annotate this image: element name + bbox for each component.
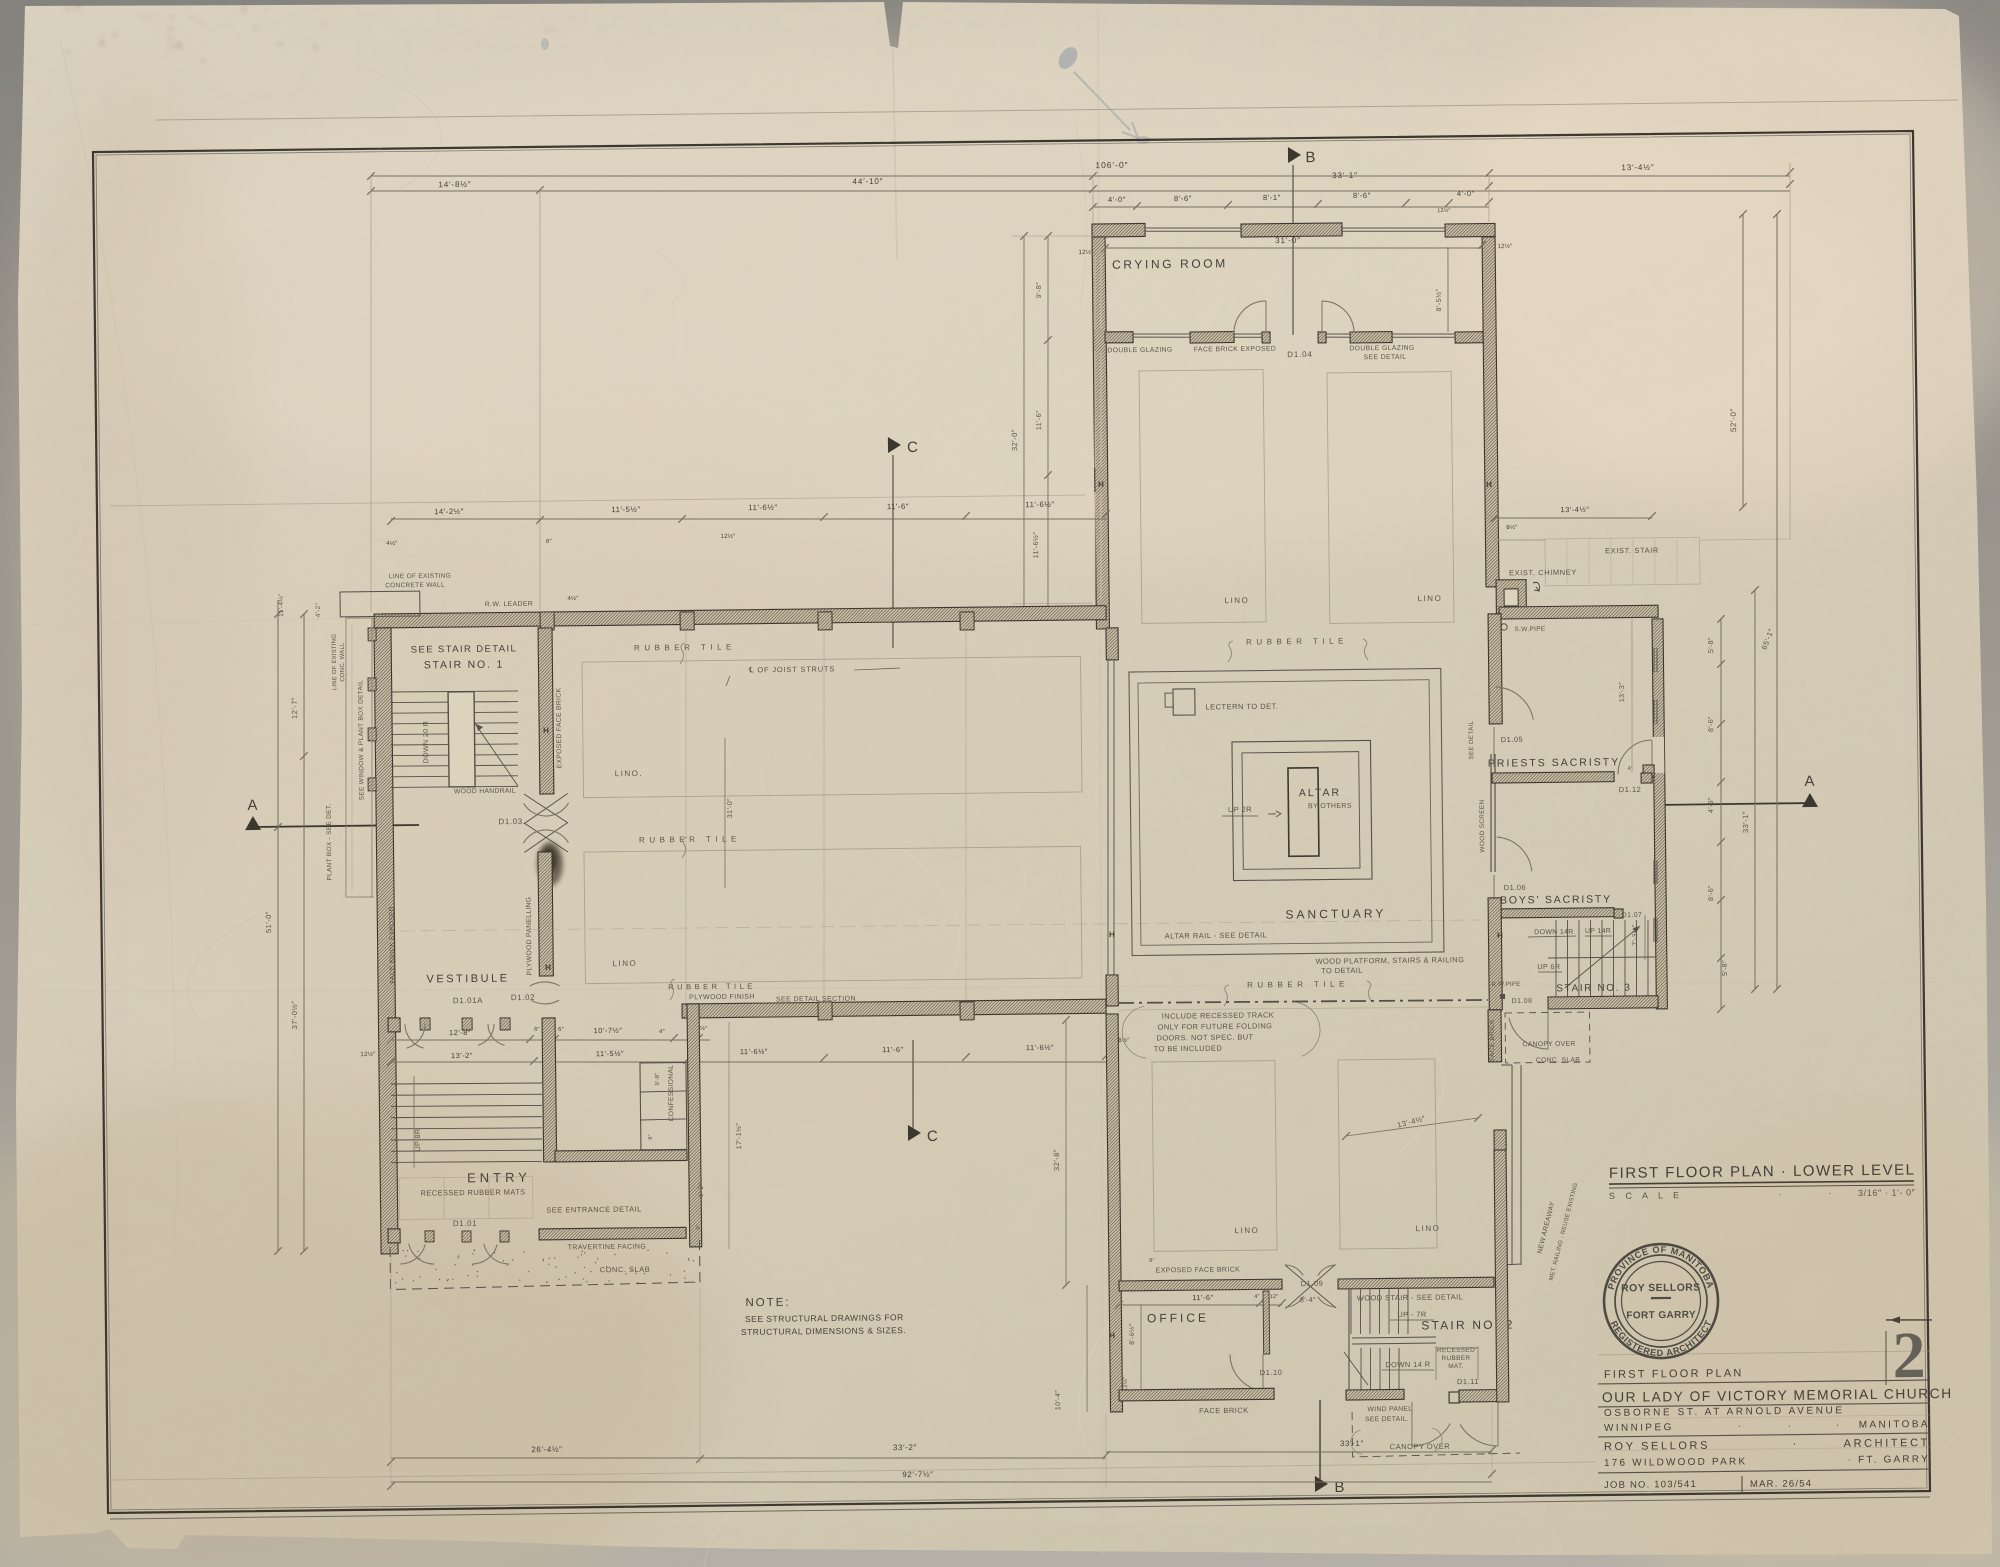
svg-text:UP 6R: UP 6R [1537, 962, 1560, 971]
svg-text:SEE DETAIL: SEE DETAIL [1468, 720, 1475, 759]
svg-text:CANOPY OVER: CANOPY OVER [1390, 1442, 1451, 1452]
svg-text:33′-1″: 33′-1″ [1741, 811, 1750, 833]
svg-text:8″: 8″ [648, 1134, 654, 1139]
svg-text:EXPOSED FACE BRICK: EXPOSED FACE BRICK [1156, 1267, 1241, 1275]
svg-text:STRUCTURAL DIMENSIONS & SIZES.: STRUCTURAL DIMENSIONS & SIZES. [741, 1325, 906, 1337]
svg-text:8″: 8″ [696, 1224, 702, 1229]
svg-text:7′-3½″: 7′-3½″ [1631, 924, 1639, 946]
svg-text:LINO.: LINO. [615, 769, 644, 778]
svg-text:11′-6½″: 11′-6½″ [1025, 500, 1054, 509]
svg-text:FACE BRICK: FACE BRICK [1489, 1019, 1496, 1061]
svg-text:D1.01: D1.01 [453, 1219, 477, 1228]
svg-text:4½″: 4½″ [386, 540, 398, 547]
svg-text:12″: 12″ [1270, 1294, 1279, 1300]
svg-text:H: H [1486, 480, 1492, 489]
svg-text:WINNIPEG: WINNIPEG [1604, 1422, 1674, 1434]
svg-text:12½″: 12½″ [1078, 249, 1094, 256]
svg-text:CONFESSIONAL: CONFESSIONAL [668, 1065, 676, 1122]
svg-text:D1.05: D1.05 [1501, 735, 1524, 744]
svg-text:14′-2½″: 14′-2½″ [434, 507, 464, 516]
svg-text:D1.07: D1.07 [1622, 912, 1643, 919]
svg-text:JOB NO. 103/541: JOB NO. 103/541 [1604, 1479, 1697, 1491]
svg-text:DOWN 14 R: DOWN 14 R [1385, 1360, 1431, 1370]
svg-text:4″: 4″ [1254, 1294, 1259, 1300]
svg-text:·: · [1738, 1421, 1742, 1432]
svg-text:SEE WINDOW & PLANT BOX DETAIL: SEE WINDOW & PLANT BOX DETAIL [357, 680, 365, 801]
svg-text:RUBBER TILE: RUBBER TILE [634, 642, 736, 652]
svg-text:ARCHITECT: ARCHITECT [1844, 1437, 1930, 1450]
svg-text:H: H [1109, 1331, 1115, 1340]
svg-text:FACE BRICK: FACE BRICK [1199, 1406, 1249, 1416]
svg-text:WOOD HANDRAIL: WOOD HANDRAIL [454, 788, 516, 796]
svg-text:D1.08: D1.08 [1512, 998, 1533, 1005]
svg-text:A: A [247, 797, 258, 814]
svg-text:11′-6½″: 11′-6½″ [740, 1047, 768, 1056]
svg-text:H: H [1109, 930, 1115, 939]
svg-text:11′-6″: 11′-6″ [887, 502, 909, 511]
svg-text:5′-8″: 5′-8″ [655, 1072, 661, 1086]
svg-text:33′-1″: 33′-1″ [1332, 171, 1358, 180]
svg-text:8′-6″: 8′-6″ [1708, 716, 1715, 732]
svg-text:R.W.PIPE: R.W.PIPE [1491, 981, 1520, 988]
svg-text:32′-8″: 32′-8″ [1052, 1149, 1061, 1171]
svg-text:8½″: 8½″ [1506, 524, 1518, 531]
svg-text:11′-4½″: 11′-4½″ [277, 593, 285, 617]
svg-text:13′-2″: 13′-2″ [451, 1051, 473, 1060]
svg-text:12′-7″: 12′-7″ [290, 697, 299, 719]
svg-text:B: B [1305, 149, 1316, 166]
svg-text:26′-4½″: 26′-4½″ [531, 1445, 562, 1454]
svg-text:4′-0″: 4′-0″ [1108, 195, 1126, 204]
svg-text:D1.02: D1.02 [511, 993, 535, 1002]
svg-text:H: H [1098, 480, 1104, 489]
svg-text:10′-4″: 10′-4″ [1055, 1390, 1062, 1410]
svg-text:FIRST FLOOR PLAN: FIRST FLOOR PLAN [1604, 1367, 1744, 1381]
svg-text:UP 8R: UP 8R [413, 1128, 422, 1151]
svg-text:SEE DETAIL: SEE DETAIL [1364, 354, 1407, 361]
svg-text:LINO: LINO [1416, 1224, 1441, 1233]
svg-text:CONCRETE WALL: CONCRETE WALL [385, 582, 445, 590]
svg-text:RUBBER TILE: RUBBER TILE [668, 981, 756, 991]
svg-text:EXPOSED FACE BRICK: EXPOSED FACE BRICK [555, 688, 563, 769]
svg-text:176 WILDWOOD PARK: 176 WILDWOOD PARK [1604, 1456, 1747, 1469]
svg-text:LINO: LINO [613, 959, 638, 968]
svg-text:CONC. SLAB: CONC. SLAB [600, 1265, 651, 1275]
svg-text:8′-6½″: 8′-6½″ [1128, 1323, 1136, 1345]
svg-text:WOOD SCREEN: WOOD SCREEN [1479, 799, 1487, 852]
svg-text:4′-9″: 4′-9″ [1708, 797, 1715, 813]
svg-text:13′-4½″: 13′-4½″ [1621, 163, 1654, 172]
svg-text:EXIST. STAIR: EXIST. STAIR [1605, 546, 1659, 556]
svg-text:11′-5½″: 11′-5½″ [611, 505, 640, 514]
svg-text:CONC. WALL: CONC. WALL [340, 642, 346, 682]
svg-text:6′-2″: 6′-2″ [698, 1182, 705, 1197]
svg-text:11′-6″: 11′-6″ [1192, 1293, 1214, 1302]
svg-text:11′-6½″: 11′-6½″ [1032, 532, 1040, 559]
svg-text:SEE DETAIL SECTION: SEE DETAIL SECTION [776, 996, 856, 1004]
svg-text:·: · [1778, 1189, 1781, 1199]
svg-text:UP 14R: UP 14R [1585, 928, 1611, 935]
svg-text:MAT.: MAT. [1448, 1363, 1464, 1370]
svg-text:51′-0″: 51′-0″ [264, 911, 273, 933]
svg-text:8′-6″: 8′-6″ [1353, 191, 1371, 200]
svg-text:·: · [1828, 1188, 1831, 1198]
svg-text:BY OTHERS: BY OTHERS [1308, 803, 1352, 810]
svg-text:RUBBER TILE: RUBBER TILE [639, 834, 741, 844]
svg-text:LINO: LINO [1235, 1226, 1260, 1235]
svg-text:DOUBLE GLAZING: DOUBLE GLAZING [1349, 345, 1414, 353]
svg-text:ALTAR: ALTAR [1299, 787, 1341, 799]
svg-text:OFFICE: OFFICE [1147, 1311, 1209, 1326]
svg-text:33′-2″: 33′-2″ [893, 1443, 917, 1452]
svg-text:D1.06: D1.06 [1504, 883, 1527, 892]
svg-text:ROY SELLORS: ROY SELLORS [1621, 1282, 1701, 1295]
svg-text:DOORS. NOT SPEC. BUT: DOORS. NOT SPEC. BUT [1156, 1032, 1253, 1042]
svg-text:H: H [1497, 931, 1503, 940]
svg-text:FIRST FLOOR PLAN · LOWER LEVEL: FIRST FLOOR PLAN · LOWER LEVEL [1609, 1162, 1916, 1182]
svg-text:TO DETAIL: TO DETAIL [1321, 966, 1363, 975]
svg-text:13′-3″: 13′-3″ [1619, 682, 1626, 702]
svg-text:S C A L E: S C A L E [1609, 1190, 1683, 1201]
svg-text:ONLY FOR FUTURE FOLDING: ONLY FOR FUTURE FOLDING [1158, 1021, 1273, 1031]
svg-text:RUBBER TILE: RUBBER TILE [1247, 979, 1349, 989]
svg-text:ROY SELLORS: ROY SELLORS [1604, 1440, 1710, 1453]
svg-text:RUBBER: RUBBER [1441, 1355, 1470, 1362]
svg-text:EXIST. CHIMNEY: EXIST. CHIMNEY [1509, 568, 1577, 578]
svg-text:31′-0″: 31′-0″ [1275, 236, 1301, 245]
svg-text:11′-6½″: 11′-6½″ [748, 503, 777, 512]
svg-text:PLYWOOD FINISH: PLYWOOD FINISH [689, 994, 755, 1002]
svg-text:SEE DETAIL.: SEE DETAIL. [1365, 1416, 1409, 1423]
svg-text:12½″: 12½″ [1437, 207, 1451, 214]
svg-text:11′-5½″: 11′-5½″ [596, 1049, 624, 1058]
svg-text:2: 2 [1892, 1319, 1926, 1392]
svg-text:12′-8″: 12′-8″ [449, 1028, 471, 1037]
svg-text:·: · [1793, 1438, 1798, 1450]
svg-text:5′-8″: 5′-8″ [1722, 960, 1729, 976]
svg-text:H: H [543, 726, 549, 735]
svg-text:D1.11: D1.11 [1457, 1377, 1479, 1386]
svg-text:D1.01A: D1.01A [453, 996, 483, 1005]
svg-text:12½″: 12½″ [1497, 243, 1513, 250]
svg-text:8″: 8″ [1149, 1258, 1154, 1264]
svg-text:17′-1½″: 17′-1½″ [735, 1123, 743, 1150]
svg-text:RUBBER TILE: RUBBER TILE [1246, 636, 1348, 646]
svg-text:8′-5½″: 8′-5½″ [1435, 289, 1443, 312]
svg-text:PLANT BOX - SEE DET.: PLANT BOX - SEE DET. [326, 803, 334, 880]
svg-text:12½″: 12½″ [721, 533, 736, 540]
svg-text:SANCTUARY: SANCTUARY [1285, 906, 1386, 921]
svg-text:D1.09: D1.09 [1301, 1279, 1324, 1288]
svg-text:WOOD PLATFORM, STAIRS & RAILIN: WOOD PLATFORM, STAIRS & RAILING [1315, 955, 1464, 966]
svg-text:FACE BRICK EXPOSED: FACE BRICK EXPOSED [389, 906, 397, 983]
svg-text:14′-8½″: 14′-8½″ [438, 180, 471, 189]
svg-text:LINO: LINO [1418, 594, 1443, 603]
svg-text:RECESSED RUBBER MATS: RECESSED RUBBER MATS [420, 1187, 525, 1197]
svg-text:MANITOBA: MANITOBA [1859, 1419, 1930, 1431]
svg-text:C: C [927, 1128, 939, 1145]
svg-text:3/16″ · 1′- 0″: 3/16″ · 1′- 0″ [1858, 1187, 1916, 1198]
svg-text:STAIR NO. 1: STAIR NO. 1 [424, 659, 504, 672]
svg-text:C: C [907, 439, 919, 456]
svg-text:LINO: LINO [1225, 596, 1250, 605]
svg-text:D1.12: D1.12 [1619, 785, 1642, 794]
svg-text:4½″: 4½″ [567, 595, 579, 602]
svg-text:VESTIBULE: VESTIBULE [426, 973, 509, 986]
svg-text:33′-1″: 33′-1″ [1340, 1439, 1364, 1448]
svg-text:UP 2R: UP 2R [1228, 805, 1252, 814]
svg-text:SEE STAIR DETAIL: SEE STAIR DETAIL [411, 643, 518, 655]
svg-text:44′-10″: 44′-10″ [852, 177, 883, 186]
svg-text:D1.03.: D1.03. [498, 817, 525, 826]
svg-text:℄ OF JOIST STRUTS: ℄ OF JOIST STRUTS [748, 664, 835, 674]
svg-text:·: · [1836, 1420, 1840, 1431]
svg-text:92′-7½″: 92′-7½″ [902, 1470, 933, 1479]
svg-text:PRIESTS SACRISTY: PRIESTS SACRISTY [1488, 756, 1620, 770]
svg-text:SEE ENTRANCE DETAIL: SEE ENTRANCE DETAIL [546, 1204, 642, 1214]
svg-text:STAIR NO. 3: STAIR NO. 3 [1556, 983, 1631, 995]
svg-text:ALTAR RAIL - SEE DETAIL: ALTAR RAIL - SEE DETAIL [1165, 930, 1268, 940]
svg-text:D1.04: D1.04 [1287, 350, 1312, 359]
svg-text:D1.10: D1.10 [1260, 1368, 1283, 1377]
svg-text:DOWN 14R: DOWN 14R [1534, 929, 1573, 936]
svg-text:8′-1″: 8′-1″ [1263, 193, 1281, 202]
svg-text:6″: 6″ [546, 539, 553, 545]
svg-text:37′-0½″: 37′-0½″ [290, 1001, 299, 1030]
svg-text:4′-2″: 4′-2″ [315, 602, 322, 617]
svg-text:6″: 6″ [558, 1027, 564, 1033]
svg-text:CANOPY OVER: CANOPY OVER [1522, 1041, 1575, 1049]
svg-text:NOTE:: NOTE: [745, 1297, 790, 1310]
svg-text:FORT GARRY: FORT GARRY [1626, 1310, 1696, 1322]
svg-text:4″: 4″ [659, 1029, 665, 1035]
svg-text:CRYING ROOM: CRYING ROOM [1112, 256, 1228, 271]
svg-text:31′-0″: 31′-0″ [727, 798, 734, 818]
svg-text:12½″: 12½″ [1122, 1376, 1129, 1391]
svg-text:MAR. 26/54: MAR. 26/54 [1750, 1478, 1812, 1490]
svg-text:4′-0″: 4′-0″ [1457, 189, 1475, 198]
svg-text:11′-6″: 11′-6″ [1036, 410, 1043, 430]
svg-text:·: · [1788, 1421, 1792, 1432]
svg-text:· FT. GARRY: · FT. GARRY [1848, 1454, 1930, 1466]
svg-text:H: H [545, 963, 551, 972]
svg-text:WOOD STAIR - SEE DETAIL: WOOD STAIR - SEE DETAIL [1357, 1292, 1464, 1302]
svg-text:13′-4½″: 13′-4½″ [1560, 505, 1589, 514]
svg-text:BOYS' SACRISTY: BOYS' SACRISTY [1500, 893, 1612, 906]
svg-text:TO BE INCLUDED: TO BE INCLUDED [1154, 1044, 1223, 1054]
svg-text:6″: 6″ [534, 1027, 540, 1033]
svg-text:LINE OF EXISTING: LINE OF EXISTING [389, 573, 451, 581]
svg-text:CONC. SLAB: CONC. SLAB [1536, 1057, 1580, 1065]
svg-text:11′-6″: 11′-6″ [882, 1045, 904, 1054]
svg-text:8′-6″: 8′-6″ [1174, 194, 1192, 203]
svg-text:32′-0″: 32′-0″ [1010, 429, 1019, 451]
svg-text:5′-8″: 5′-8″ [1708, 637, 1715, 653]
svg-text:11′-6½″: 11′-6½″ [1026, 1043, 1054, 1052]
svg-text:10′-7½″: 10′-7½″ [594, 1026, 623, 1035]
svg-text:12½″: 12½″ [360, 1051, 376, 1058]
svg-text:8′-6″: 8′-6″ [1708, 885, 1715, 901]
svg-text:9′-8″: 9′-8″ [1036, 282, 1043, 299]
svg-text:SEE STRUCTURAL DRAWINGS FOR: SEE STRUCTURAL DRAWINGS FOR [745, 1312, 904, 1324]
svg-text:LECTERN TO DET.: LECTERN TO DET. [1205, 702, 1278, 712]
svg-text:PLYWOOD PANELLING: PLYWOOD PANELLING [526, 897, 534, 976]
svg-text:A: A [1804, 773, 1815, 790]
svg-text:S.W.PIPE: S.W.PIPE [1514, 626, 1545, 633]
svg-text:8′-4″: 8′-4″ [1300, 1297, 1316, 1304]
svg-text:DOWN 20 R: DOWN 20 R [423, 721, 430, 764]
svg-text:106′-0″: 106′-0″ [1095, 160, 1128, 170]
svg-text:R.W. LEADER: R.W. LEADER [485, 601, 533, 609]
svg-text:INCLUDE RECESSED TRACK: INCLUDE RECESSED TRACK [1162, 1010, 1275, 1020]
svg-text:TRAVERTINE FACING: TRAVERTINE FACING [568, 1244, 647, 1252]
svg-text:FACE BRICK EXPOSED: FACE BRICK EXPOSED [1194, 346, 1276, 354]
svg-text:52′-0″: 52′-0″ [1729, 408, 1738, 432]
svg-text:DOUBLE GLAZING: DOUBLE GLAZING [1107, 347, 1172, 355]
svg-text:WIND PANEL: WIND PANEL [1368, 1406, 1413, 1414]
svg-text:LINE OF EXISTING: LINE OF EXISTING [332, 634, 339, 690]
